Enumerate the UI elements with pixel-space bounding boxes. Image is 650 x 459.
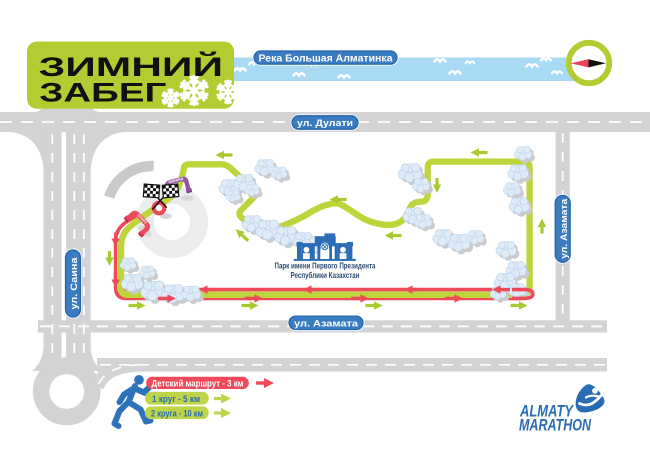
svg-text:ул. Азамата: ул. Азамата [559, 198, 570, 259]
svg-text:MARATHON: MARATHON [519, 417, 592, 435]
svg-text:ЗАБЕГ: ЗАБЕГ [39, 78, 166, 108]
svg-text:Парк имени Первого Президента: Парк имени Первого Президента [275, 261, 376, 270]
svg-text:ул. Саина: ул. Саина [69, 257, 80, 310]
svg-text:2 круга - 10 км: 2 круга - 10 км [151, 408, 203, 418]
svg-text:ул. Азамата: ул. Азамата [294, 318, 359, 329]
svg-text:Детский маршрут - 3 км: Детский маршрут - 3 км [152, 378, 244, 388]
svg-text:ул. Дулати: ул. Дулати [297, 118, 353, 129]
svg-text:Река Большая Алматинка: Река Большая Алматинка [259, 53, 393, 64]
svg-text:Республики Казахстан: Республики Казахстан [291, 270, 360, 280]
svg-text:1 круг - 5 км: 1 круг - 5 км [152, 394, 200, 404]
